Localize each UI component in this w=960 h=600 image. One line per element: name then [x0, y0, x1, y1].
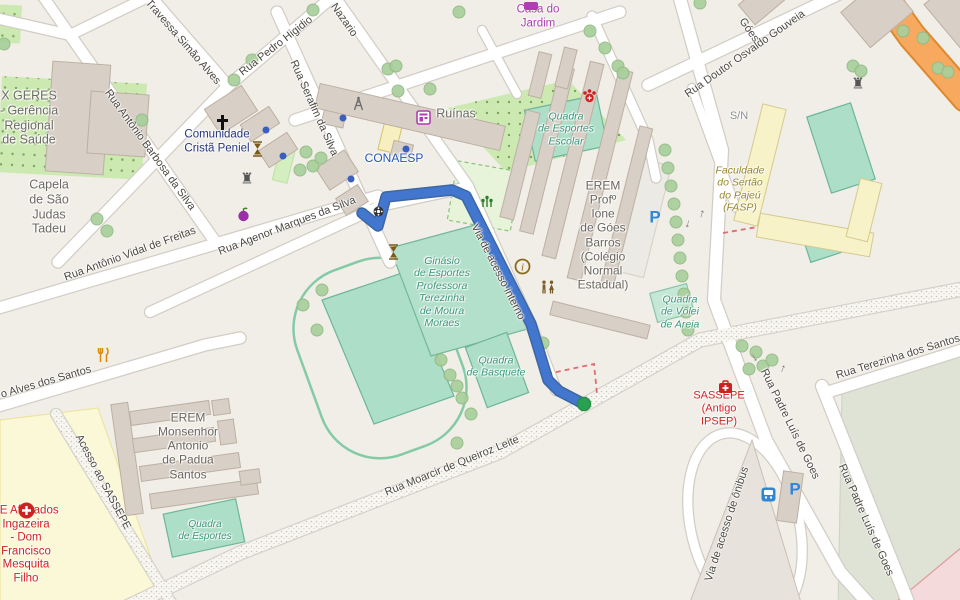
boundary-dash-2	[723, 227, 757, 233]
route-destination-marker	[578, 398, 591, 411]
map-overlay-layer	[0, 0, 960, 600]
map-canvas[interactable]: Travessa Simão AlvesRua Pedro HigidioRua…	[0, 0, 960, 600]
